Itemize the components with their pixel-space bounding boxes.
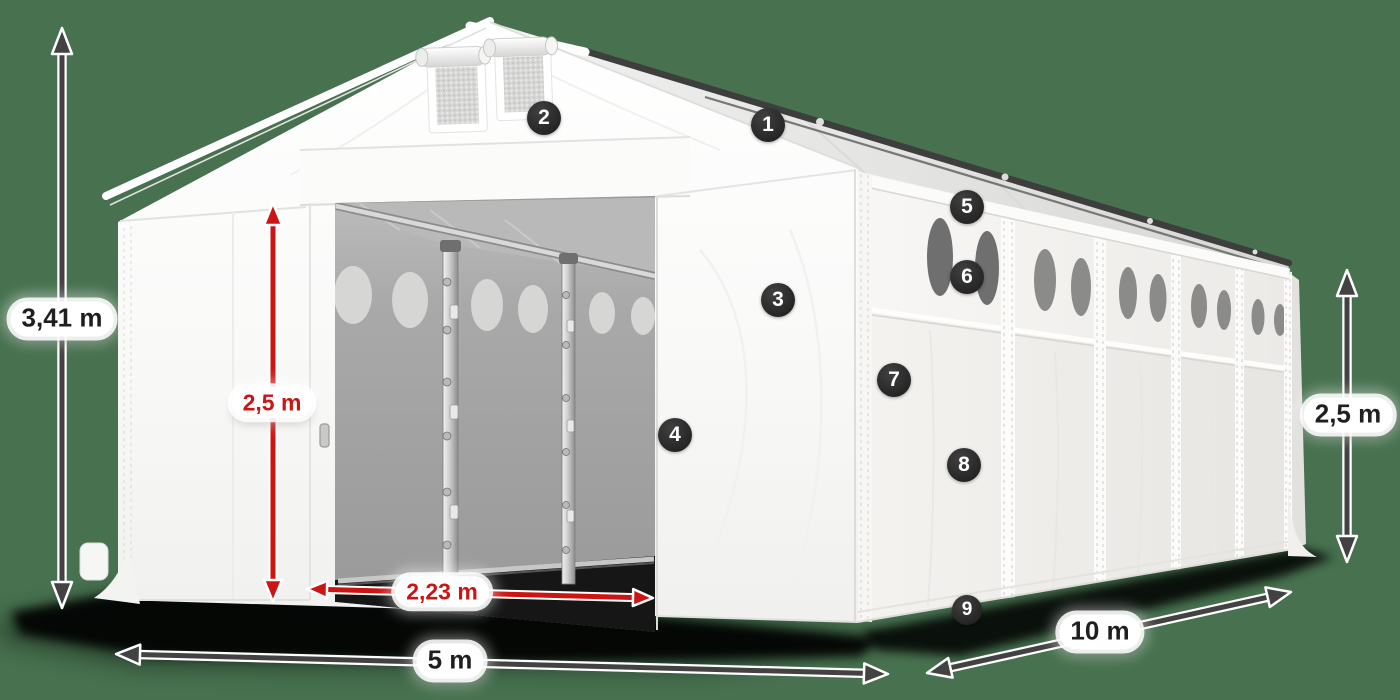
callout-marker-8[interactable]: 8 [947, 448, 981, 482]
label-side-height: 2,5 m [1304, 398, 1393, 433]
label-door-width: 2,23 m [395, 576, 489, 607]
label-front-width: 5 m [417, 644, 484, 679]
callout-marker-9[interactable]: 9 [952, 595, 982, 625]
label-side-length: 10 m [1059, 615, 1140, 650]
label-door-height: 2,5 m [232, 387, 313, 418]
tent-illustration [0, 0, 1400, 700]
side-wall [846, 170, 1317, 622]
diagram-stage: 1 2 3 4 5 6 7 8 9 3,41 m 2,5 m 2,23 m 5 … [0, 0, 1400, 700]
vent-roll [487, 37, 552, 57]
callout-marker-7[interactable]: 7 [877, 363, 911, 397]
callout-marker-6[interactable]: 6 [950, 260, 984, 294]
label-total-height: 3,41 m [11, 302, 114, 337]
vent-roll [420, 46, 487, 67]
callout-marker-4[interactable]: 4 [658, 418, 692, 452]
callout-marker-1[interactable]: 1 [751, 108, 785, 142]
door-interior [334, 196, 655, 632]
door-handle [320, 424, 329, 447]
callout-marker-3[interactable]: 3 [761, 283, 795, 317]
callout-marker-2[interactable]: 2 [527, 101, 561, 135]
callout-marker-5[interactable]: 5 [950, 190, 984, 224]
corner-strap-buckle [80, 543, 108, 580]
